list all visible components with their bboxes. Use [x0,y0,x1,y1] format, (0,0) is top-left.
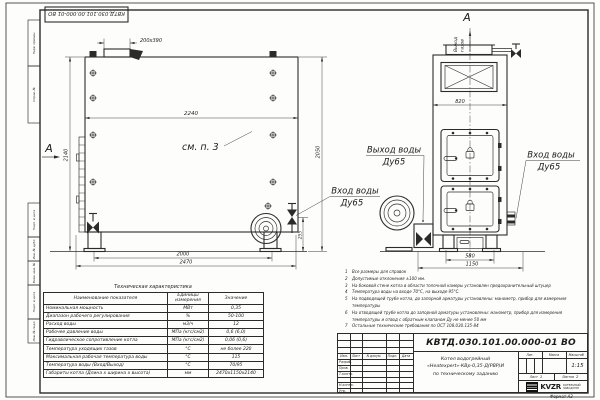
margin-field-podp-data-2: Подп. и дата [32,292,36,313]
boiler-front-view: А Выход газов [366,11,580,272]
side-ladder [77,137,86,232]
dim-feet-2000: 2000 [177,252,190,258]
kvzr-logo-icon [526,382,538,392]
scale-value: 1:15 [566,358,589,373]
spec-table-grid: Наименование показателя Единицы измерени… [43,292,264,379]
col-podp: Подп. [386,353,399,359]
spec-col-value: Значение [209,292,264,304]
spec-units: % [168,312,209,320]
spec-value: 50-100 [209,312,264,320]
note-text: На подводящей трубе котла, до запорной а… [352,296,585,310]
lifting-lug-right [270,51,277,57]
manufacturer-logo: KVZR КОТЕЛЬНЫЙ ЗАВОД РЭП [518,380,589,394]
sheets-label: Листов [562,375,574,379]
inlet-label-line1: Вход воды [527,151,575,161]
note-text: На отводящей трубе котла до запорной арм… [352,310,585,324]
side-view-dimensions: 200х390 2240 2140 2050 255 [64,38,328,270]
dim-height-2050: 2050 [316,146,322,159]
flue-adapter [130,49,143,60]
product-name-line1: Котел водогрейный [441,356,490,363]
sheets-cell: Листов 2 [554,373,587,380]
spec-value: 0,06 (0,6) [209,337,264,345]
top-hatch [441,63,497,92]
spec-name: Диапазон рабочего регулирования [44,312,168,320]
spec-units: °С [168,345,209,353]
spec-name: Гидравлическое сопротивление котла [44,337,168,345]
inlet-label-line2: Ду65 [537,163,561,173]
col-data: Дата [399,353,413,359]
outlet-label-line1: Выход воды [367,146,421,156]
logo-caption-line2: ЗАВОД РЭП [563,387,581,390]
spec-name: Температура уходящих газов [44,345,168,353]
spec-row: Рабочее давление водыМПа (кгс/см2)0,6 (6… [44,329,264,337]
col-doc: N докум. [362,353,386,359]
spec-units: МПа (кгс/см2) [168,337,209,345]
spec-col-units: Единицы измерения [168,292,209,304]
spec-header-row: Наименование показателя Единицы измерени… [44,292,264,304]
spec-row: Гидравлическое сопротивление котлаМПа (к… [44,337,264,345]
spec-row: Температура уходящих газов°Сне более 220 [44,345,264,353]
margin-field-inv-dubl: Инв. № дубл. [32,239,36,260]
scale-label: Масштаб [566,351,587,358]
spec-units: мм [168,370,209,378]
note-item: 1Все размеры для справок [345,269,585,276]
notes-list: 1Все размеры для справок 2Допустимые отк… [345,269,585,330]
margin-field-sprav: Справ. № [32,87,36,102]
spec-units: °С [168,361,209,369]
spec-table: Техническая характеристика Наименование … [43,284,263,378]
dim-top-width-820: 820 [455,99,465,105]
spec-name: Рабочее давление воды [44,329,168,337]
mass-label: Масса [542,351,566,358]
note-text: Остальные технические требования по ОСТ … [352,323,585,330]
note-number: 5 [345,296,352,310]
spec-value: 0,6 (6,0) [209,329,264,337]
note-text: Все размеры для справок [352,269,585,276]
spec-row: Температура воды (Вход/Выход)°С70/95 [44,361,264,369]
margin-field-inv-podl: Инв. № подл. [32,321,36,342]
logo-text: KVZR [540,383,561,391]
upper-door [441,130,502,182]
dim-width-2240: 2240 [184,111,198,117]
water-inlet-valve [287,204,297,234]
note-item: 5На подводящей трубе котла, до запорной … [345,296,585,310]
row-utv: Утв. [339,388,361,394]
spec-value: 0,35 [209,304,264,312]
margin-field-vzam-inv: Взам. инв. № [32,263,36,283]
note-item: 3На боковой стене котла в области топочн… [345,283,585,290]
product-name-line3: по техническому заданию [433,371,498,378]
dim-feet-580: 580 [465,253,475,259]
front-supports [380,235,545,252]
side-inlet-label-line1: Вход воды [331,187,379,197]
section-label-a-front: А [462,11,471,24]
drawing-sheet: Перв. примен. Справ. № Подп. и дата Инв.… [0,0,600,400]
margin-field-podp-data-1: Подп. и дата [32,210,36,231]
spec-value: 70/95 [209,361,264,369]
spec-name: Температура воды (Вход/Выход) [44,361,168,369]
spec-row: Габариты котла (Длина х ширина х высота)… [44,370,264,378]
spec-units: °С [168,353,209,361]
spec-table-title: Техническая характеристика [43,284,263,290]
sheets-value: 2 [576,374,578,379]
product-name-line2: «Heatexpert»-КВр-0,35-Д(РВР)И [427,363,504,370]
flue-label-line1: Выход [453,37,459,52]
spec-units: МВт [168,304,209,312]
sheet-value: 1 [540,374,542,379]
note-item: 2Допустимые отклонения ±100 мм. [345,276,585,283]
boiler-side-view: 200х390 2240 2140 2050 255 [42,38,380,270]
spec-row: Диапазон рабочего регулирования%50-100 [44,312,264,320]
side-inlet-label-line2: Ду65 [340,199,364,209]
logo-caption: КОТЕЛЬНЫЙ ЗАВОД РЭП [563,384,581,391]
lit-label: Лит. [518,351,542,358]
spec-units: м3/ч [168,320,209,328]
note-number: 7 [345,323,352,330]
dim-width-1150: 1150 [466,261,479,267]
note-number: 1 [345,269,352,276]
note-text: Допустимые отклонения ±100 мм. [352,276,585,283]
lifting-lug-left [90,51,97,57]
spec-name: Номинальная мощность [44,304,168,312]
spec-row: Расход водым3/ч12 [44,320,264,328]
spec-row: Максимальная рабочая температура воды°С1… [44,353,264,361]
dim-inlet-height-255: 255 [298,231,304,240]
spec-value: 12 [209,320,264,328]
spec-row: Номинальная мощностьМВт0,35 [44,304,264,312]
margin-field-perv-primen: Перв. примен. [32,32,36,55]
side-view-labels: А см. п. 3 Вход воды Ду65 [42,132,380,216]
dim-height-2140: 2140 [64,149,70,162]
front-fan [380,196,433,251]
note-number: 3 [345,283,352,290]
sheet-cell: Лист 1 [518,373,554,380]
sheet-label: Лист [530,375,538,379]
spec-name: Габариты котла (Длина х ширина х высота) [44,370,168,378]
note-number: 2 [345,276,352,283]
note-item: 4Температура воды на входе 70°С, на выхо… [345,289,585,296]
section-label-a-side: А [44,142,53,155]
note-text: На боковой стене котла в области топочно… [352,283,585,290]
note-number: 6 [345,310,352,324]
format-note: Формат А3 [550,394,573,399]
lower-door [441,186,502,232]
spec-col-name: Наименование показателя [44,292,168,304]
dim-cutout: 200х390 [140,38,162,44]
spec-value: 115 [209,353,264,361]
note-item: 6На отводящей трубе котла до запорной ар… [345,310,585,324]
detail-note-label: см. п. 3 [182,142,219,153]
drain-valve [87,214,99,234]
anchor-point-symbols [89,69,276,209]
row-tkontr: Т.контр. [339,371,361,377]
spec-name: Расход воды [44,320,168,328]
front-inlet-flange [507,212,515,225]
doc-number: КВТД.030.101.00.000-01 ВО [413,334,589,351]
dim-length-2470: 2470 [180,260,193,266]
spec-value: 2470х1150х2140 [209,370,264,378]
outlet-label-line2: Ду65 [382,158,406,168]
note-number: 4 [345,289,352,296]
product-name: Котел водогрейный «Heatexpert»-КВр-0,35-… [413,351,518,394]
top-stamp-doc-number: КВТД.030.101.00.000-01 ВО [48,10,125,16]
note-text: Температура воды на входе 70°С, на выход… [352,289,585,296]
spec-value: не более 220 [209,345,264,353]
spec-name: Максимальная рабочая температура воды [44,353,168,361]
note-item: 7Остальные технические требования по ОСТ… [345,323,585,330]
spec-units: МПа (кгс/см2) [168,329,209,337]
title-block: Изм. Лист N докум. Подп. Дата Разраб. Пр… [337,333,588,393]
